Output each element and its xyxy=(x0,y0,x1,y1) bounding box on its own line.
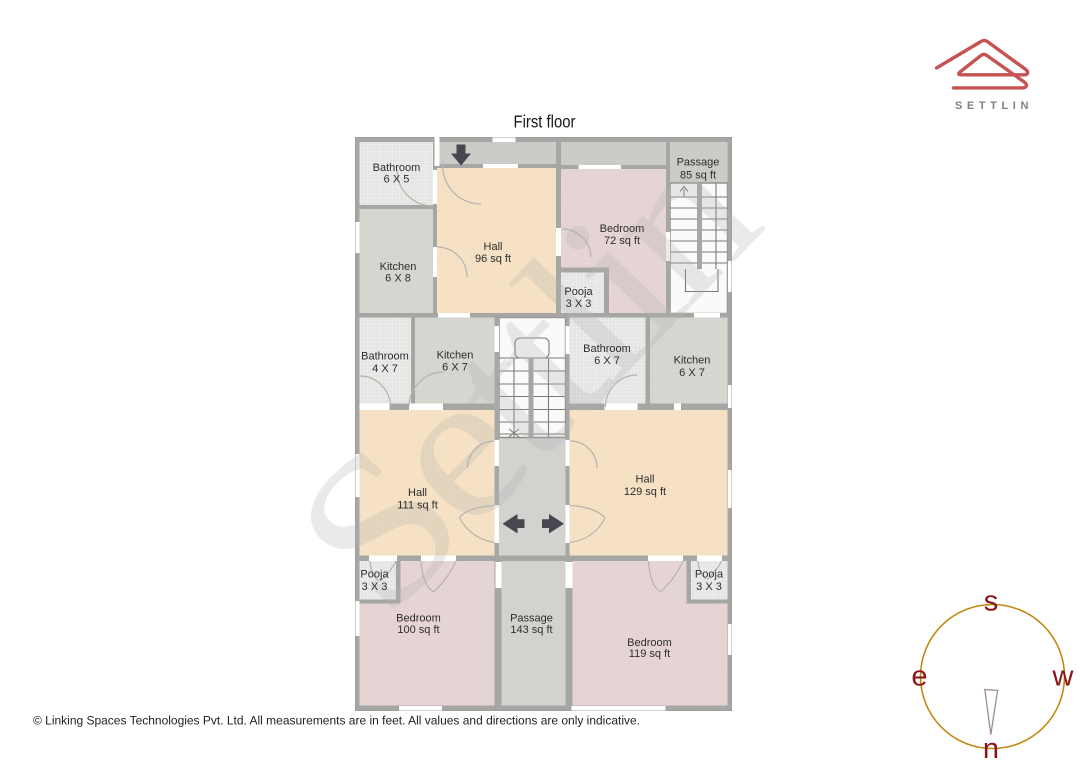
svg-text:Hall: Hall xyxy=(408,487,427,499)
svg-text:119 sq ft: 119 sq ft xyxy=(629,648,670,660)
svg-text:6 X 8: 6 X 8 xyxy=(385,273,411,285)
svg-text:6 X 5: 6 X 5 xyxy=(384,174,410,186)
svg-text:Kitchen: Kitchen xyxy=(437,350,474,362)
svg-text:Pooja: Pooja xyxy=(360,569,389,581)
svg-text:129 sq ft: 129 sq ft xyxy=(624,486,666,498)
svg-text:100 sq ft: 100 sq ft xyxy=(397,624,439,636)
svg-text:6 X 7: 6 X 7 xyxy=(442,362,468,374)
svg-text:Passage: Passage xyxy=(677,157,720,169)
svg-text:6 X 7: 6 X 7 xyxy=(594,355,620,367)
svg-text:Kitchen: Kitchen xyxy=(674,355,711,367)
svg-text:3 X 3: 3 X 3 xyxy=(566,298,592,310)
svg-text:Passage: Passage xyxy=(510,613,553,625)
svg-text:143 sq ft: 143 sq ft xyxy=(510,624,552,636)
svg-text:96 sq ft: 96 sq ft xyxy=(475,253,511,265)
svg-text:Pooja: Pooja xyxy=(564,286,593,298)
svg-text:3 X 3: 3 X 3 xyxy=(362,581,388,593)
svg-text:n: n xyxy=(983,733,999,764)
svg-text:s: s xyxy=(984,586,999,618)
svg-text:Hall: Hall xyxy=(484,241,503,253)
svg-text:w: w xyxy=(1052,661,1075,693)
svg-text:SETTLIN: SETTLIN xyxy=(955,100,1033,112)
svg-text:Pooja: Pooja xyxy=(695,569,724,581)
svg-text:e: e xyxy=(911,661,927,693)
svg-text:72 sq ft: 72 sq ft xyxy=(604,235,640,247)
svg-text:Kitchen: Kitchen xyxy=(380,261,417,273)
svg-text:111 sq ft: 111 sq ft xyxy=(397,500,438,512)
svg-text:Bedroom: Bedroom xyxy=(396,613,441,625)
svg-text:6 X 7: 6 X 7 xyxy=(679,367,705,379)
svg-text:3 X 3: 3 X 3 xyxy=(696,581,722,593)
svg-text:4 X 7: 4 X 7 xyxy=(372,363,398,375)
svg-text:85 sq ft: 85 sq ft xyxy=(680,170,716,182)
svg-text:Bathroom: Bathroom xyxy=(361,351,409,363)
svg-text:Hall: Hall xyxy=(636,474,655,486)
svg-text:© Linking Spaces Technologies: © Linking Spaces Technologies Pvt. Ltd. … xyxy=(33,714,640,728)
svg-text:First floor: First floor xyxy=(514,112,576,132)
svg-text:Bathroom: Bathroom xyxy=(583,343,631,355)
svg-text:Bathroom: Bathroom xyxy=(373,162,421,174)
svg-text:Bedroom: Bedroom xyxy=(600,223,645,235)
